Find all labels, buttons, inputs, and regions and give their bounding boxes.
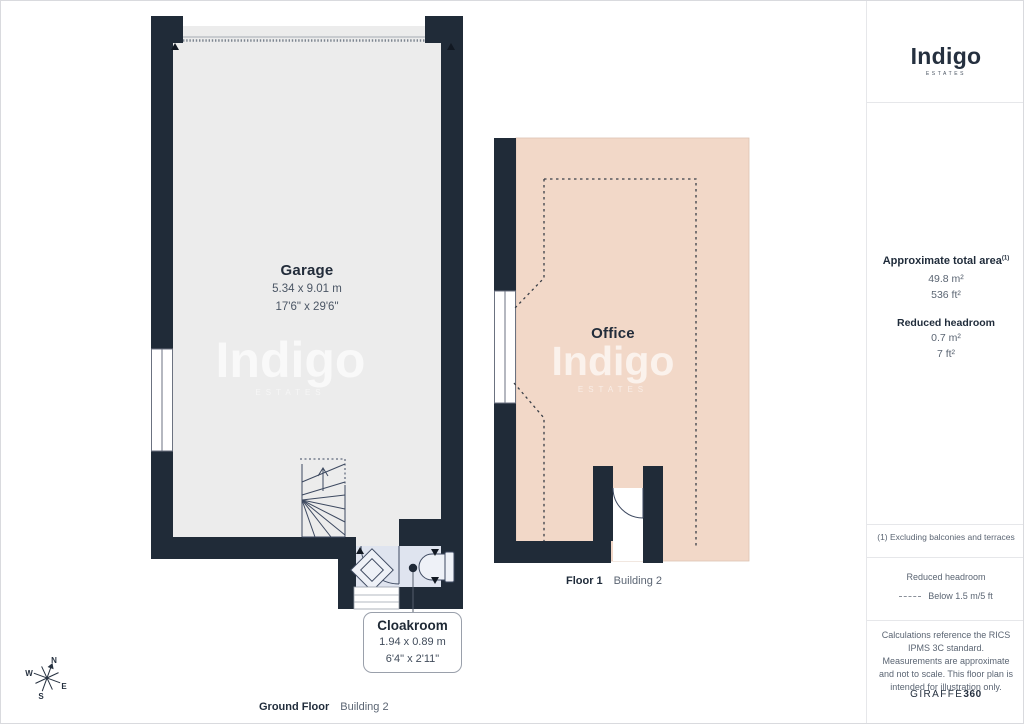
- dashed-line-icon: [899, 596, 921, 597]
- disclaimer-text: Calculations reference the RICS IPMS 3C …: [878, 629, 1014, 694]
- floor-name: Ground Floor: [259, 701, 329, 713]
- office-room: [494, 138, 749, 563]
- room-dims-imperial: 6'4" x 2'11": [366, 652, 459, 667]
- steps-icon: [354, 587, 399, 609]
- area-summary: Approximate total area(1) 49.8 m² 536 ft…: [867, 255, 1024, 362]
- brand-name: GIRAFFE: [910, 689, 963, 700]
- reduced-ft2: 7 ft²: [867, 347, 1024, 363]
- indigo-logo: Indigo ESTATES: [867, 43, 1024, 77]
- logo-text: Indigo: [867, 43, 1024, 70]
- reduced-headroom-title: Reduced headroom: [867, 317, 1024, 329]
- info-sidebar: Indigo ESTATES Approximate total area(1)…: [866, 1, 1024, 724]
- divider: [867, 557, 1024, 558]
- divider: [867, 102, 1024, 103]
- building-name: Building 2: [614, 575, 662, 587]
- floorplan-page: N E S W Indigo ESTATES Indigo ESTATES Ga…: [0, 0, 1024, 724]
- footnote-marker: (1): [1002, 255, 1009, 261]
- compass-w: W: [25, 669, 33, 678]
- compass-icon: N E S W: [25, 656, 67, 701]
- area-title: Approximate total area(1): [867, 255, 1024, 267]
- area-ft2: 536 ft²: [867, 288, 1024, 304]
- giraffe360-brand: GIRAFFE360: [867, 689, 1024, 700]
- callout-dot: [409, 564, 417, 572]
- logo-subtext: ESTATES: [867, 71, 1024, 77]
- legend-desc: Below 1.5 m/5 ft: [928, 591, 993, 601]
- divider: [867, 620, 1024, 621]
- compass-s: S: [38, 692, 44, 701]
- area-footnote: (1) Excluding balconies and terraces: [871, 532, 1021, 542]
- brand-suffix: 360: [963, 689, 982, 700]
- compass-e: E: [61, 682, 67, 691]
- building-name: Building 2: [340, 701, 388, 713]
- legend-title: Reduced headroom: [867, 572, 1024, 582]
- divider: [867, 524, 1024, 525]
- room-dims-metric: 1.94 x 0.89 m: [366, 635, 459, 650]
- window-icon: [152, 349, 173, 451]
- cloakroom-callout: Cloakroom 1.94 x 0.89 m 6'4" x 2'11": [363, 612, 462, 673]
- reduced-headroom-legend: Reduced headroom Below 1.5 m/5 ft: [867, 572, 1024, 601]
- compass-n: N: [51, 656, 57, 665]
- room-name: Cloakroom: [366, 618, 459, 633]
- reduced-m2: 0.7 m²: [867, 331, 1024, 347]
- garage-room: [151, 16, 463, 613]
- area-m2: 49.8 m²: [867, 272, 1024, 288]
- ground-floor-caption: Ground FloorBuilding 2: [259, 701, 389, 713]
- window-icon: [495, 291, 516, 403]
- floor-name: Floor 1: [566, 575, 603, 587]
- floor1-caption: Floor 1Building 2: [566, 575, 662, 587]
